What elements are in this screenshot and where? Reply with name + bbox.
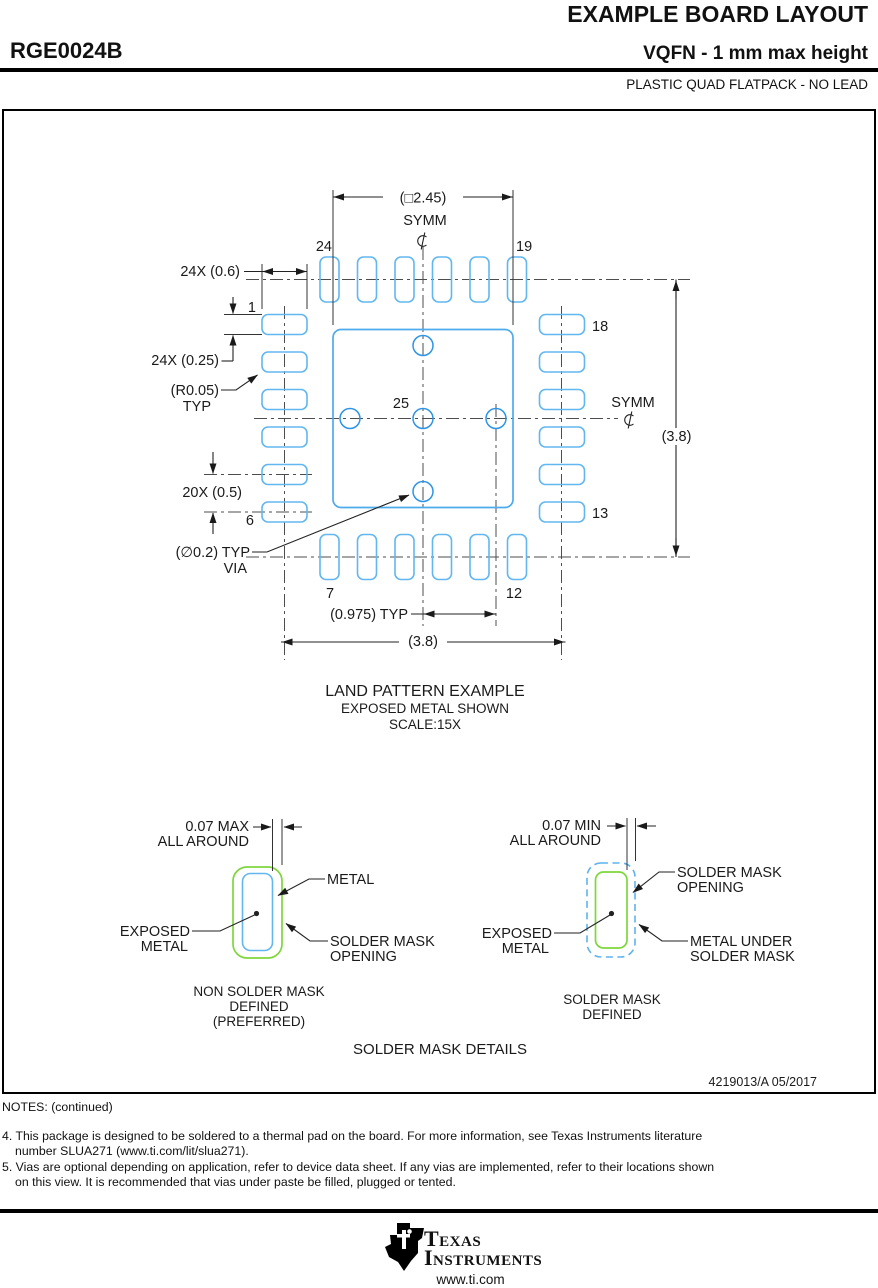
package-title: VQFN - 1 mm max height [643, 43, 868, 65]
smd-exposed-line2: METAL [502, 941, 549, 957]
smd-opening-line2: OPENING [677, 880, 744, 896]
dim-pad-width-label: 24X (0.25) [151, 353, 219, 369]
note-4-line2: number SLUA271 (www.ti.com/lit/slua271). [2, 1144, 876, 1159]
notes-title: NOTES: (continued) [2, 1100, 876, 1115]
smd-detail: 0.07 MIN ALL AROUND SOLDER MASK OPENING … [482, 818, 795, 1022]
caption-line1: LAND PATTERN EXAMPLE [325, 683, 524, 700]
dim-width-label: (3.8) [408, 634, 438, 650]
pin-24: 24 [316, 239, 332, 255]
dim-via-pitch: (0.975) TYP [330, 607, 496, 623]
dim-pad-length-label: 24X (0.6) [180, 264, 240, 280]
page-title: EXAMPLE BOARD LAYOUT [567, 1, 868, 28]
pin-numbers: 24 19 1 6 7 12 18 13 25 [246, 239, 608, 602]
dim-pad-length: 24X (0.6) [180, 264, 307, 309]
nsmd-opening-line1: SOLDER MASK [330, 934, 435, 950]
dim-pitch: 20X (0.5) [182, 452, 242, 534]
nsmd-dim-line2: ALL AROUND [158, 834, 249, 850]
pin-1: 1 [248, 300, 256, 316]
package-subtitle: PLASTIC QUAD FLATPACK - NO LEAD [626, 77, 868, 92]
pin-12: 12 [506, 586, 522, 602]
nsmd-dim-line1: 0.07 MAX [185, 819, 249, 835]
nsmd-exposed-line1: EXPOSED [120, 924, 190, 940]
board-layout-drawing: (□2.45) SYMM SYMM 24X (0.6) 24X (0.25) (… [2, 109, 872, 1090]
pin-25: 25 [393, 396, 409, 412]
footer-rule [0, 1209, 878, 1213]
smd-caption-line1: SOLDER MASK [563, 992, 661, 1007]
dim-via-word: VIA [224, 561, 248, 577]
note-5-line2: on this view. It is recommended that via… [2, 1175, 876, 1190]
nsmd-caption-line1: NON SOLDER MASK [193, 984, 324, 999]
pin-19: 19 [516, 239, 532, 255]
centerline-symbol-icon [418, 233, 427, 250]
dim-corner-radius-label: (R0.05) [171, 383, 219, 399]
ti-url: www.ti.com [383, 1272, 558, 1287]
note-4-line1: 4. This package is designed to be solder… [2, 1129, 876, 1144]
smd-opening-line1: SOLDER MASK [677, 865, 782, 881]
symm-top: SYMM [403, 213, 447, 250]
smd-dim-line2: ALL AROUND [510, 833, 601, 849]
centerlines [204, 247, 690, 660]
pin-7: 7 [326, 586, 334, 602]
nsmd-caption-line2: DEFINED [229, 999, 289, 1014]
nsmd-caption-line3: (PREFERRED) [213, 1014, 305, 1029]
smd-exposed-line1: EXPOSED [482, 926, 552, 942]
pin-13: 13 [592, 506, 608, 522]
nsmd-opening-line2: OPENING [330, 949, 397, 965]
caption-line2: EXPOSED METAL SHOWN [341, 701, 509, 716]
caption-line3: SCALE:15X [389, 717, 461, 732]
note-5-line1: 5. Vias are optional depending on applic… [2, 1160, 876, 1175]
solder-mask-details-title: SOLDER MASK DETAILS [353, 1041, 527, 1058]
dim-via-pitch-label: (0.975) TYP [330, 607, 408, 623]
smd-under-line2: SOLDER MASK [690, 949, 795, 965]
doc-number: 4219013/A 05/2017 [709, 1075, 817, 1089]
pin-6: 6 [246, 513, 254, 529]
ti-logo-icon [383, 1222, 425, 1272]
nsmd-detail: 0.07 MAX ALL AROUND METAL EXPOSED METAL … [120, 819, 435, 1029]
dim-corner-radius-typ: TYP [183, 399, 211, 415]
nsmd-exposed-metal-dot [254, 911, 259, 916]
nsmd-exposed-line2: METAL [141, 939, 188, 955]
symm-right: SYMM [611, 395, 655, 429]
notes-section: NOTES: (continued) 4. This package is de… [2, 1100, 876, 1190]
part-number: RGE0024B [10, 38, 123, 64]
centerline-symbol-icon [625, 412, 634, 429]
dim-pitch-label: 20X (0.5) [182, 485, 242, 501]
header-rule [0, 68, 878, 72]
dim-corner-radius: (R0.05) TYP [171, 375, 258, 415]
smd-exposed-metal-dot [609, 911, 614, 916]
dim-height: (3.8) [655, 280, 698, 558]
land-pattern-caption: LAND PATTERN EXAMPLE EXPOSED METAL SHOWN… [325, 683, 524, 732]
dim-pad-width: 24X (0.25) [151, 297, 262, 369]
smd-caption-line2: DEFINED [582, 1007, 642, 1022]
smd-solder-mask-opening-shape [596, 872, 628, 948]
dim-thermal-square-label: (□2.45) [400, 191, 447, 207]
pin-18: 18 [592, 319, 608, 335]
smd-dim-line1: 0.07 MIN [542, 818, 601, 834]
dim-width: (3.8) [281, 633, 566, 650]
nsmd-metal-label: METAL [327, 872, 374, 888]
dim-via-label: (∅0.2) TYP [176, 545, 250, 561]
dim-height-label: (3.8) [662, 429, 692, 445]
symm-top-label: SYMM [403, 213, 447, 229]
brand-instruments: Instruments [424, 1248, 542, 1267]
symm-right-label: SYMM [611, 395, 655, 411]
smd-under-line1: METAL UNDER [690, 934, 792, 950]
